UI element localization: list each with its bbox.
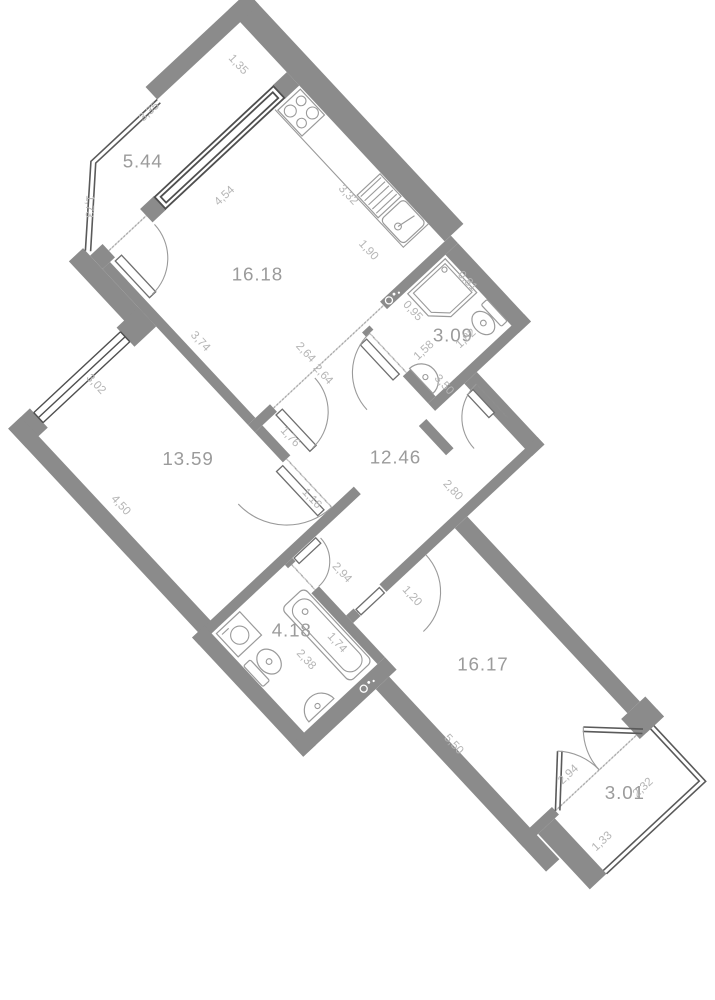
dim-label: 3,02	[84, 371, 109, 396]
dim-label: 2,64	[311, 362, 336, 388]
dim-label: 2,94	[556, 762, 582, 787]
door-swings	[60, 138, 715, 828]
dim-label: 4,50	[108, 492, 133, 518]
floor-plan-canvas: 5.44 16.18 3.09 13.59 12.46 4.18 16.17 3…	[0, 0, 715, 1000]
floor-plan-drawing: 5.44 16.18 3.09 13.59 12.46 4.18 16.17 3…	[0, 0, 715, 1000]
dim-label: 3,32	[336, 182, 361, 207]
dim-label: 4,54	[212, 183, 238, 208]
dim-label: 1,35	[226, 52, 251, 77]
room-label-balcony-top: 5.44	[123, 151, 163, 172]
dim-label: 1,90	[356, 237, 381, 263]
room-label-bathroom: 4.18	[272, 620, 312, 641]
room-label-hallway: 12.46	[370, 447, 421, 468]
dim-label: 3,35	[136, 99, 161, 124]
dim-label: 1,58	[411, 338, 436, 363]
bedroom-window	[34, 332, 130, 423]
dim-label: 2,64	[293, 340, 318, 366]
dim-label: 2,38	[294, 647, 319, 672]
dim-label: 1,20	[400, 583, 425, 609]
room-label-living: 16.17	[457, 653, 508, 674]
dim-label: 2,80	[440, 477, 465, 503]
room-label-bedroom: 13.59	[162, 448, 213, 469]
room-label-kitchen: 16.18	[232, 263, 283, 284]
dim-label: 1,33	[589, 829, 614, 854]
door-openings	[50, 129, 715, 827]
dim-label: 1,73	[83, 195, 97, 218]
dim-label: 2,94	[329, 560, 354, 586]
